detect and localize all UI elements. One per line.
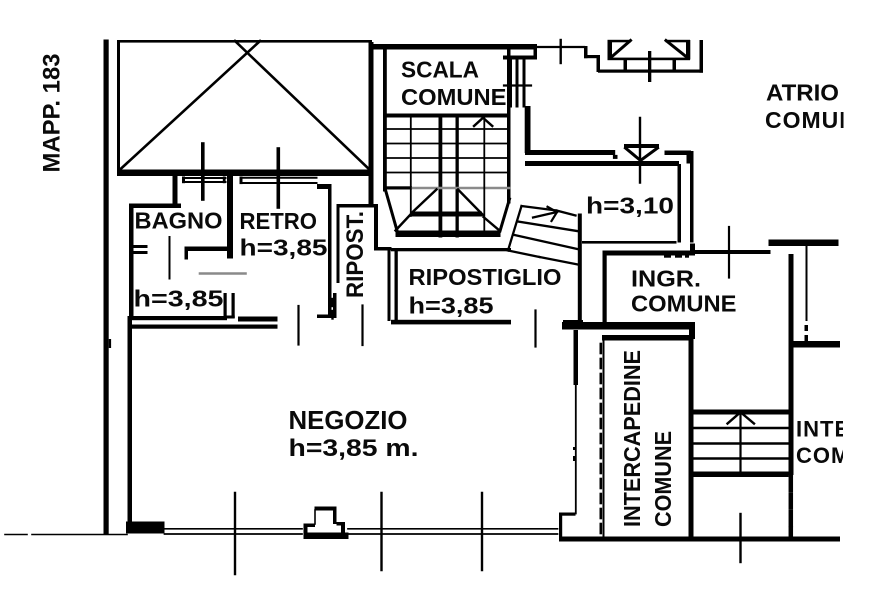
svg-text:INGR.: INGR. [631, 266, 701, 292]
svg-text:INTERCAPEDINE: INTERCAPEDINE [619, 350, 645, 527]
svg-text:RIPOST.: RIPOST. [342, 211, 369, 298]
svg-text:NEGOZIO: NEGOZIO [289, 405, 408, 435]
svg-text:h=3,10: h=3,10 [586, 193, 674, 219]
svg-text:RETRO: RETRO [240, 208, 318, 234]
svg-text:h=3,85: h=3,85 [240, 235, 328, 261]
svg-text:SCALA: SCALA [401, 57, 479, 83]
svg-text:h=3,85 m.: h=3,85 m. [289, 435, 419, 462]
svg-text:COMUNE: COMUNE [401, 84, 507, 110]
svg-text:COMUNE: COMUNE [650, 431, 676, 527]
svg-text:COMUNE: COMUNE [631, 291, 737, 317]
svg-text:BAGNO: BAGNO [135, 208, 223, 234]
svg-text:h=3,85: h=3,85 [134, 286, 224, 312]
svg-text:h=3,85: h=3,85 [409, 293, 494, 319]
svg-text:ATRIO: ATRIO [766, 80, 839, 106]
svg-text:RIPOSTIGLIO: RIPOSTIGLIO [409, 264, 562, 290]
svg-text:MAPP. 183: MAPP. 183 [39, 54, 66, 173]
